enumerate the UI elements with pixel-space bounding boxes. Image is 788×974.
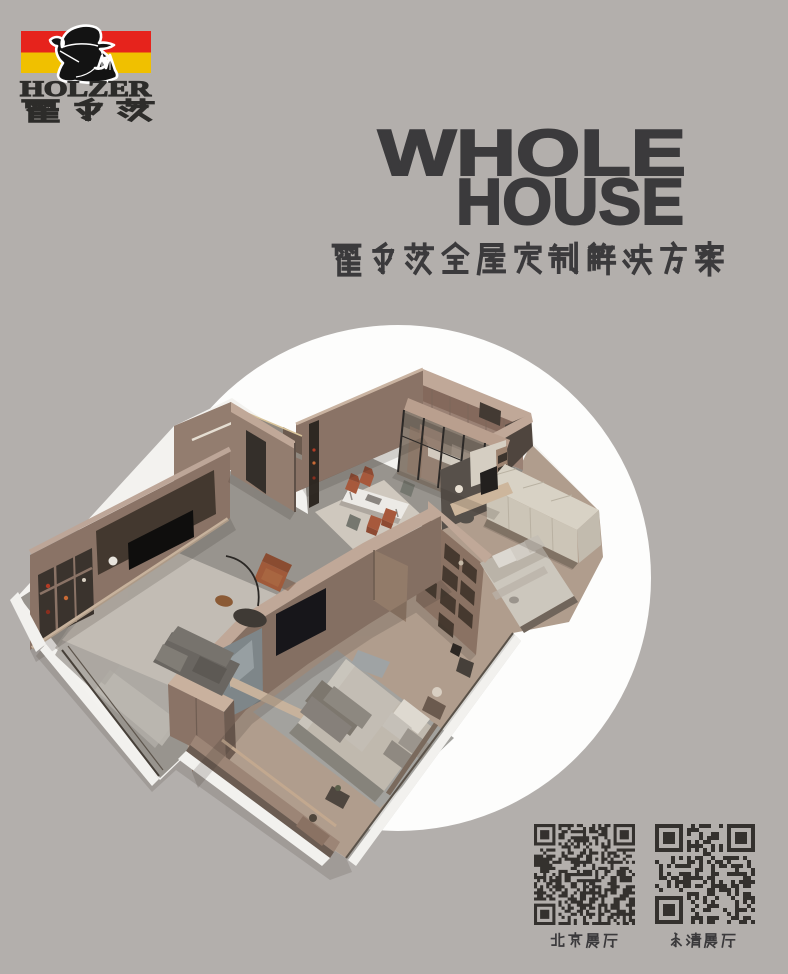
svg-text:HOLZER: HOLZER bbox=[20, 76, 153, 101]
svg-text:HOUSE: HOUSE bbox=[456, 165, 684, 238]
